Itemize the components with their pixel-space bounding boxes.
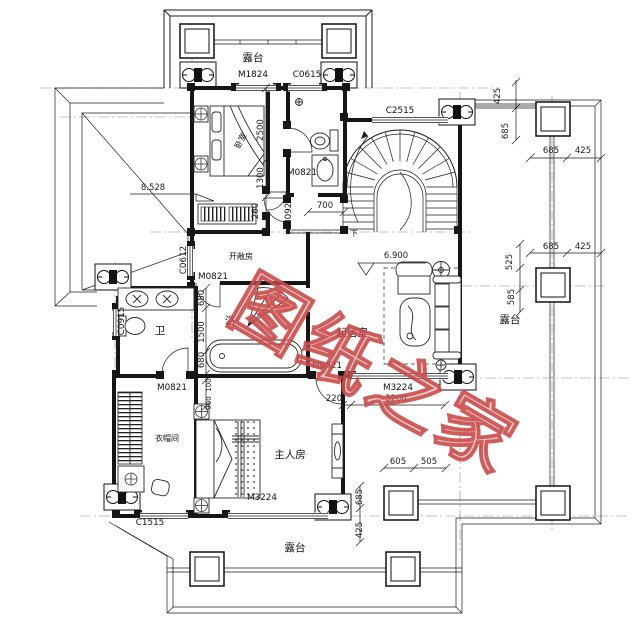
- wc-fixtures: 卫: [118, 288, 194, 337]
- label-m0921-corridor: M0921: [284, 197, 294, 227]
- label-c0915: C0915: [117, 307, 127, 336]
- label-m1824: M1824: [238, 70, 268, 80]
- terrace-column: [190, 552, 224, 586]
- label-m0821-wc: M0821: [157, 383, 187, 393]
- dim-425-bottom: 425: [355, 522, 365, 538]
- roof-elevation-text: 8.528: [141, 183, 165, 193]
- terrace-top: 露台: [164, 10, 372, 88]
- dim-685-top-right: 685: [501, 123, 511, 139]
- label-c0615: C0615: [293, 70, 322, 80]
- dim-1300: 1300: [256, 167, 266, 189]
- terrace-bottom-label: 露台: [285, 541, 306, 554]
- wc-label: 卫: [155, 325, 166, 337]
- dim-680-upper: 680: [197, 290, 207, 306]
- dim-1500: 1500: [197, 321, 207, 343]
- dim-2500: 2500: [256, 119, 266, 141]
- ornate-capital: [180, 62, 216, 88]
- open-room-label: 开敞房: [229, 251, 253, 261]
- terrace-bottom: 露台: [167, 541, 462, 586]
- terrace-column: [386, 552, 420, 586]
- label-c0612: C0612: [179, 246, 189, 275]
- label-c2515: C2515: [386, 106, 415, 116]
- dim-100: 100: [205, 378, 213, 391]
- dim-425-h1: 425: [575, 146, 591, 156]
- label-c1515: C1515: [136, 518, 165, 528]
- terrace-top-column-left: [180, 24, 214, 58]
- window-m1824: [236, 85, 276, 92]
- dim-685-h1: 685: [543, 146, 559, 156]
- ornate-corner-wc: [95, 264, 131, 290]
- terrace-column: [536, 486, 570, 520]
- label-m0821a: M0821: [198, 272, 228, 282]
- label-m3224-master: M3224: [247, 493, 277, 503]
- door-m0821-wc: [162, 348, 188, 374]
- dim-685-bottom: 685: [355, 489, 365, 505]
- terrace-top-label: 露台: [243, 51, 264, 64]
- door-m0821-bath-top: [288, 128, 312, 152]
- label-m0821-top: M0821: [287, 168, 317, 178]
- dim-605: 605: [390, 457, 406, 467]
- dim-260: 260: [251, 203, 261, 219]
- cloakroom-label: 衣帽间: [155, 433, 179, 443]
- terrace-column: [384, 486, 418, 520]
- dim-585: 585: [507, 289, 517, 305]
- spiral-staircase: 下: [343, 130, 457, 238]
- stair-down-label: 下: [350, 229, 358, 238]
- cloakroom-furniture: 衣帽间: [118, 392, 179, 497]
- dim-900: 900: [205, 396, 213, 409]
- dim-425-top-right: 425: [493, 88, 503, 104]
- terrace-column: [536, 268, 570, 302]
- floor-plan-svg: 8.528 露台 露台 露台: [0, 0, 640, 629]
- floor-plan-canvas: 8.528 露台 露台 露台: [0, 0, 640, 629]
- dim-700: 700: [317, 201, 333, 211]
- window-c0615: [288, 85, 322, 92]
- window-m3224-master: [228, 513, 328, 520]
- window-c2515: [372, 117, 448, 124]
- terrace-top-column-right: [322, 24, 356, 58]
- master-room-label: 主人房: [274, 448, 306, 461]
- dim-425-h2: 425: [575, 242, 591, 252]
- dim-680-lower: 680: [197, 352, 207, 368]
- terrace-column: [536, 102, 570, 136]
- dim-525: 525: [505, 254, 515, 270]
- floor-elevation-text: 6.900: [384, 251, 408, 261]
- dim-685-h2: 685: [543, 242, 559, 252]
- roof-elevation-marker: 8.528: [130, 183, 214, 201]
